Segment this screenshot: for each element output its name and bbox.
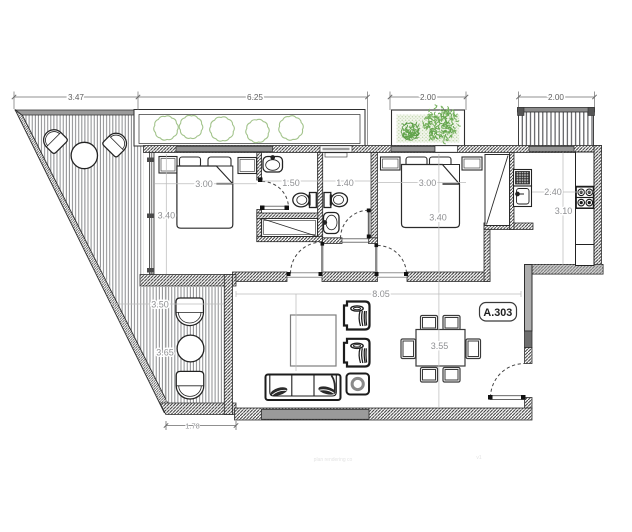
svg-text:1.40: 1.40 [336, 178, 354, 188]
svg-text:3.10: 3.10 [555, 206, 573, 216]
svg-text:2.00: 2.00 [420, 93, 436, 102]
svg-text:8.05: 8.05 [372, 289, 390, 299]
svg-text:A.303: A.303 [483, 307, 512, 319]
svg-text:3.00: 3.00 [419, 178, 437, 188]
svg-text:3.55: 3.55 [431, 341, 449, 351]
svg-text:6.25: 6.25 [247, 93, 263, 102]
svg-text:2.00: 2.00 [548, 93, 564, 102]
svg-text:3.65: 3.65 [156, 348, 174, 358]
svg-text:2.40: 2.40 [544, 187, 562, 197]
svg-text:3.00: 3.00 [195, 179, 213, 189]
svg-text:3.47: 3.47 [68, 93, 84, 102]
svg-text:1.78: 1.78 [185, 421, 199, 430]
svg-text:1.50: 1.50 [282, 178, 300, 188]
svg-text:plan rendering co: plan rendering co [314, 457, 353, 463]
svg-text:v1: v1 [476, 455, 482, 461]
svg-text:3.50: 3.50 [151, 299, 169, 309]
svg-text:3.40: 3.40 [158, 211, 176, 221]
svg-text:3.40: 3.40 [429, 212, 447, 222]
